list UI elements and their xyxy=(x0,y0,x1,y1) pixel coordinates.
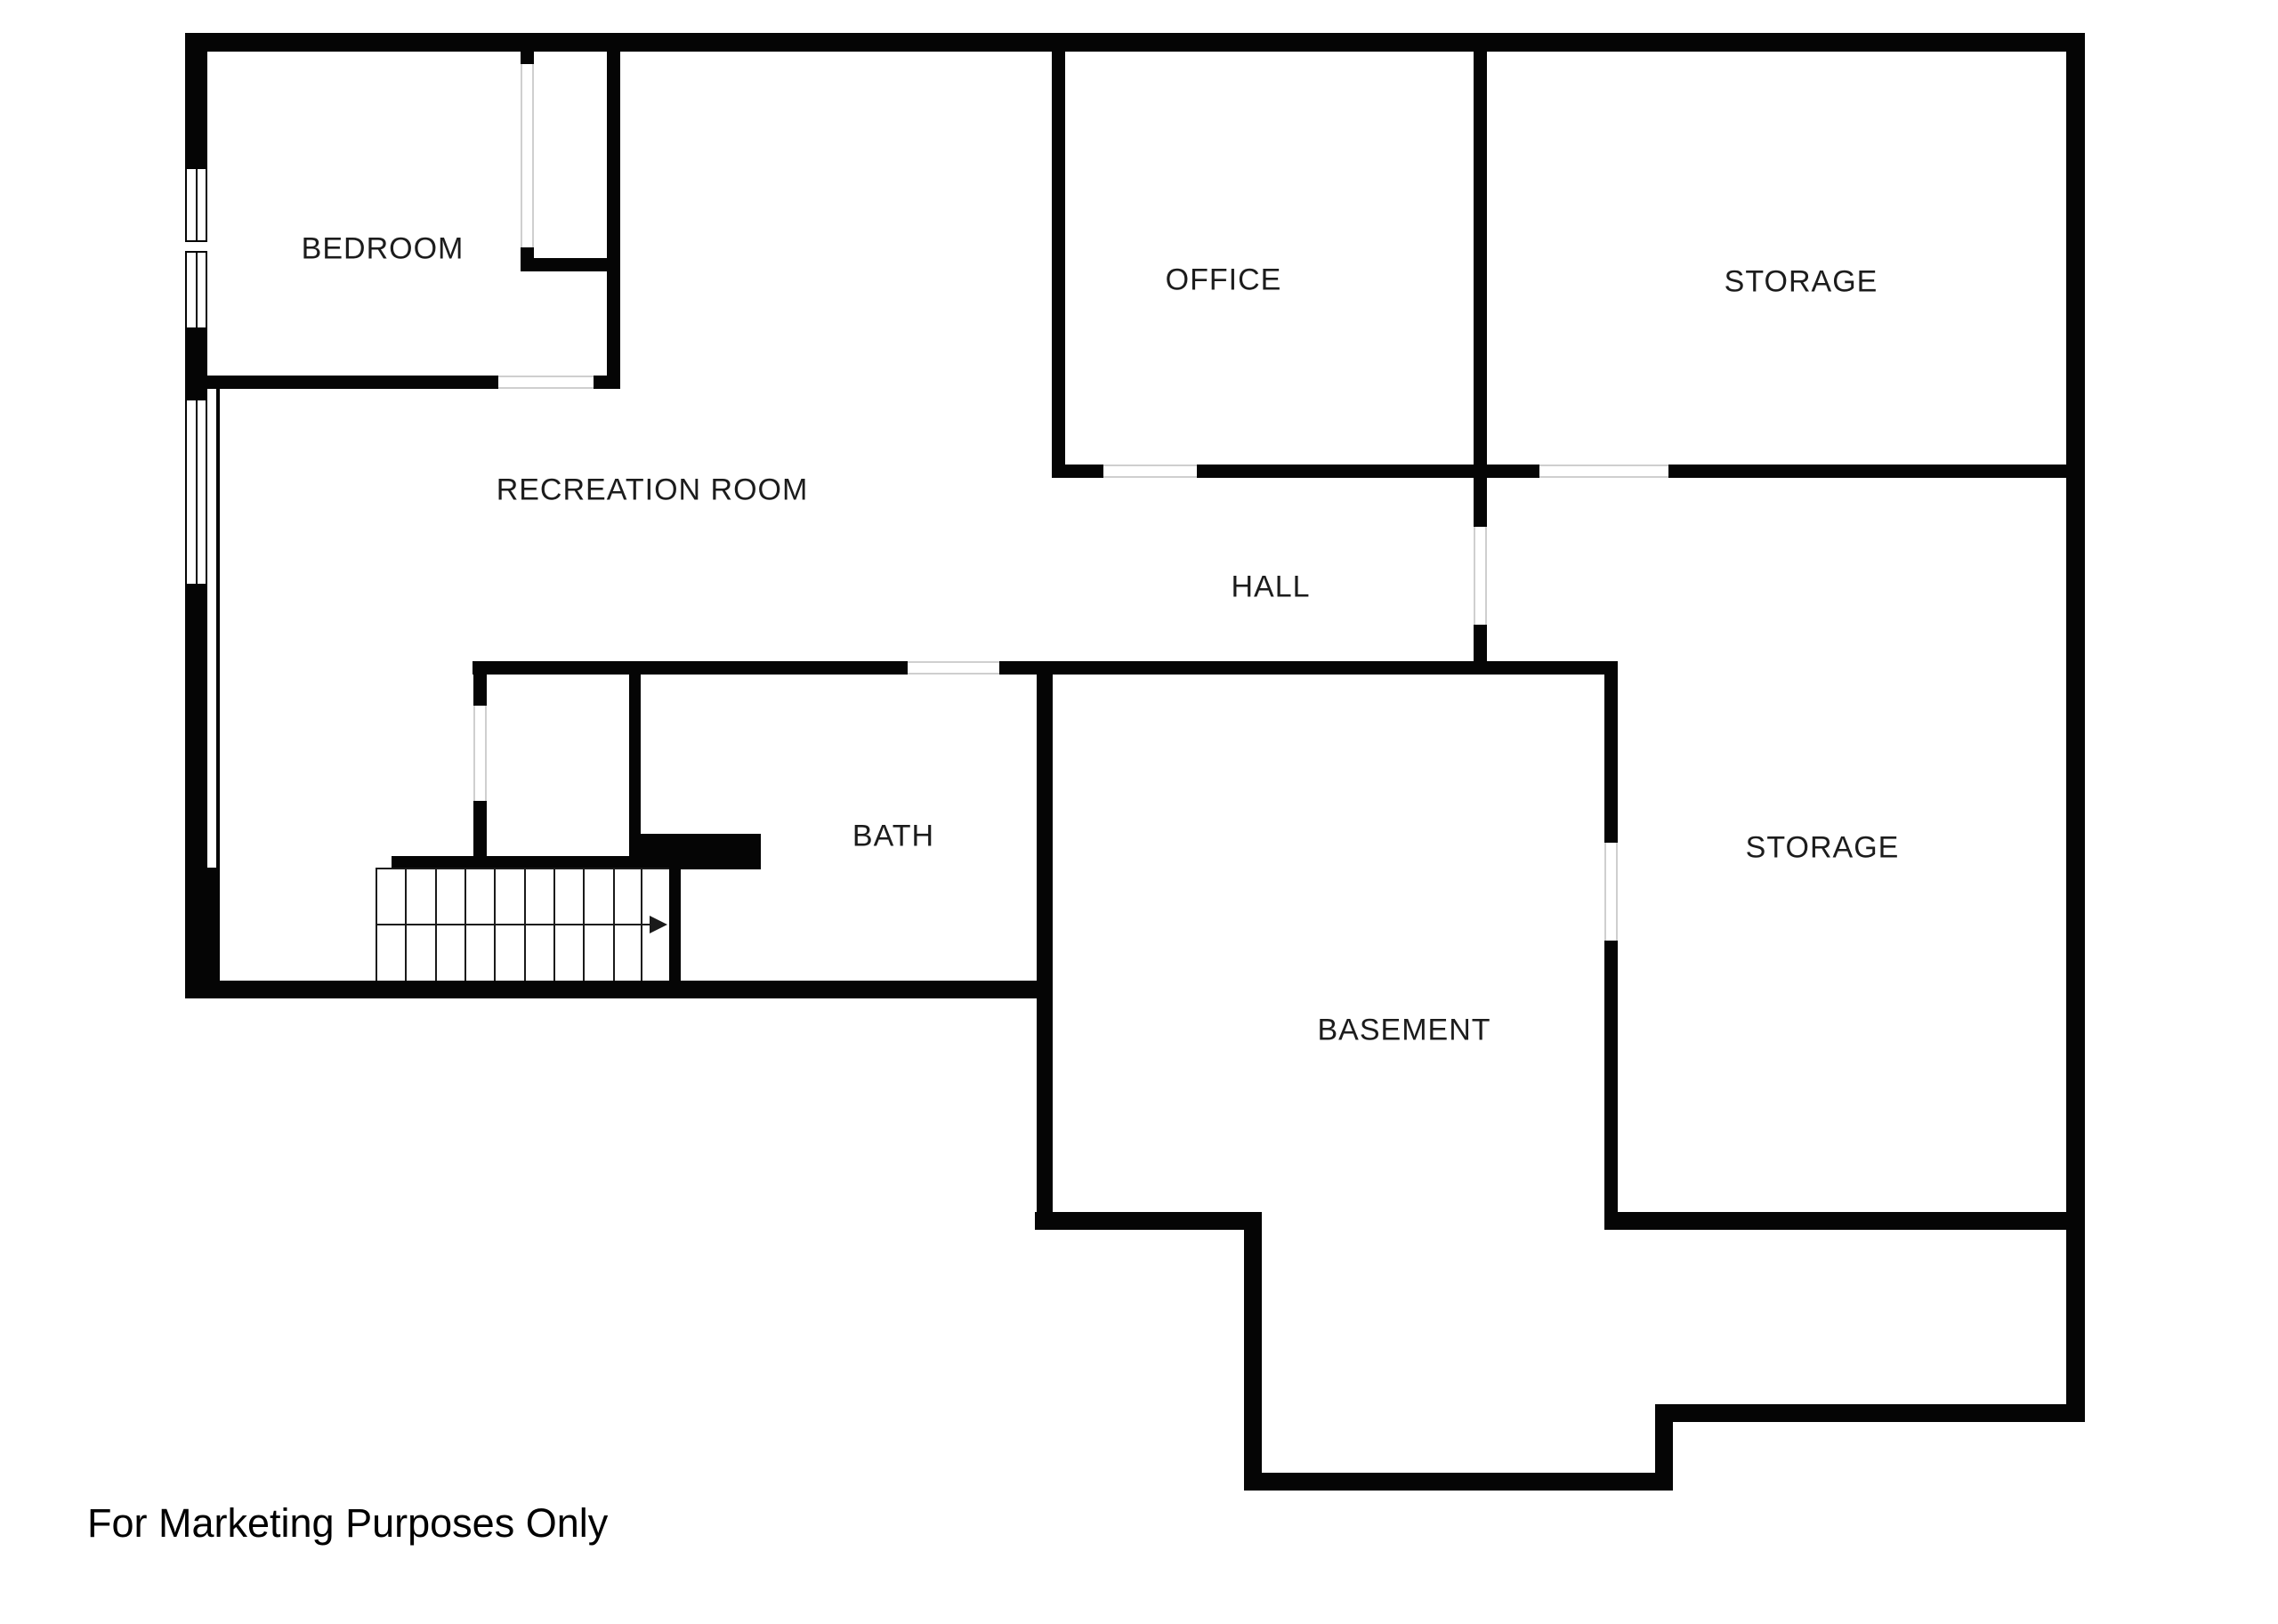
bath-door-opening xyxy=(908,661,999,675)
stairwell-east-wall xyxy=(669,869,681,988)
recreation-room-label: RECREATION ROOM xyxy=(497,473,809,508)
bath-west-wall xyxy=(629,675,641,834)
bedroom-door-opening xyxy=(498,376,594,389)
bedroom-window-lower-mullion xyxy=(196,253,198,327)
footnote-text: For Marketing Purposes Only xyxy=(87,1500,608,1547)
bedroom-window-upper-mullion xyxy=(196,169,198,240)
left-wall-inner-face-line xyxy=(216,388,220,868)
staircase xyxy=(376,868,669,981)
outer-left-wall-upper xyxy=(185,33,207,167)
bedroom-closet-door-opening xyxy=(521,64,534,247)
bedroom-south-wall-left xyxy=(185,376,498,389)
hall-south-wall-right xyxy=(999,661,1618,675)
storage-bottom-label: STORAGE xyxy=(1746,831,1900,866)
office-door-opening xyxy=(1103,465,1197,478)
stair-closet-door-opening xyxy=(473,706,487,801)
storage-top-south-wall-left xyxy=(1487,465,1539,478)
storage-bottom-south-wall xyxy=(1604,1212,2085,1230)
storage-top-south-wall-right xyxy=(1668,465,2066,478)
recreation-room-window xyxy=(185,399,207,586)
bedroom-closet-east-wall xyxy=(607,52,620,389)
storage-bottom-west-wall-top xyxy=(1604,661,1618,843)
stair-direction-arrow-icon xyxy=(650,916,667,933)
office-south-wall-right xyxy=(1197,465,1474,478)
hall-south-wall-left xyxy=(473,661,908,675)
office-label: OFFICE xyxy=(1166,263,1282,298)
outer-left-wall-mid2 xyxy=(185,586,207,868)
bedroom-label: BEDROOM xyxy=(302,232,464,267)
basement-west-wall xyxy=(1037,661,1053,1230)
outer-left-wall-lower xyxy=(185,868,220,998)
bedroom-closet-south-wall xyxy=(521,258,620,271)
bedroom-window-upper xyxy=(185,167,207,242)
basement-bottom-wall xyxy=(1244,1473,1673,1491)
storage-bottom-door-opening xyxy=(1604,843,1618,941)
recreation-room-window-mullion xyxy=(196,400,198,584)
office-west-wall xyxy=(1052,52,1065,478)
floorplan-canvas: For Marketing Purposes Only BEDROOMOFFIC… xyxy=(0,0,2278,1624)
basement-step-wall-h1 xyxy=(1035,1212,1262,1230)
hall-label: HALL xyxy=(1231,570,1310,605)
office-south-wall-left xyxy=(1052,465,1103,478)
outer-top-wall xyxy=(185,33,2085,52)
bedroom-window-lower xyxy=(185,251,207,329)
outer-bottom-wall-main xyxy=(185,981,1053,998)
bath-label: BATH xyxy=(852,820,934,854)
bedroom-closet-stub-bottom xyxy=(521,247,534,258)
stair-closet-west-wall-top xyxy=(473,675,487,706)
storage-bottom-west-wall-bottom xyxy=(1604,941,1618,1230)
bath-southwest-wall-chunk xyxy=(629,834,761,869)
hall-door-opening xyxy=(1474,527,1487,625)
storage-top-door-opening xyxy=(1539,465,1668,478)
storage-top-label: STORAGE xyxy=(1725,265,1878,300)
bedroom-closet-stub-top xyxy=(521,52,534,64)
basement-southeast-wall xyxy=(1655,1404,2085,1422)
stair-direction-line xyxy=(377,924,650,925)
basement-west-wall-lower xyxy=(1244,1212,1262,1491)
office-storage-divider-wall xyxy=(1474,52,1487,527)
basement-label: BASEMENT xyxy=(1317,1014,1490,1048)
